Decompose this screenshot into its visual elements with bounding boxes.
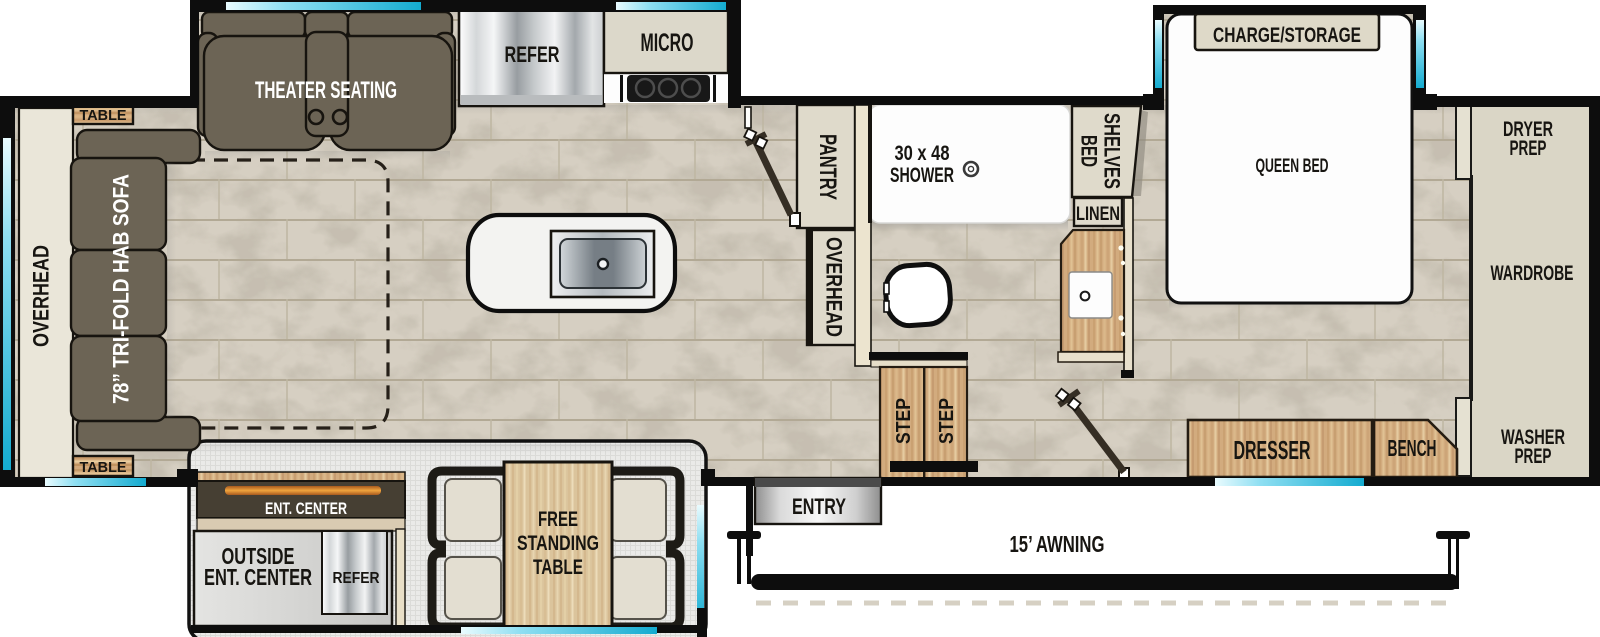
svg-text:ENT. CENTER: ENT. CENTER xyxy=(265,499,347,518)
svg-text:SHELVES: SHELVES xyxy=(1100,113,1125,189)
svg-text:REFER: REFER xyxy=(333,570,380,587)
svg-text:ENTRY: ENTRY xyxy=(792,494,846,519)
svg-text:STEP: STEP xyxy=(893,398,915,444)
svg-text:STANDING: STANDING xyxy=(517,532,599,555)
svg-text:LINEN: LINEN xyxy=(1076,204,1120,225)
svg-text:BED: BED xyxy=(1077,135,1102,167)
svg-text:ENT. CENTER: ENT. CENTER xyxy=(204,564,312,590)
svg-text:STEP: STEP xyxy=(936,398,958,444)
svg-text:BENCH: BENCH xyxy=(1388,435,1437,461)
svg-text:PREP: PREP xyxy=(1510,137,1547,160)
svg-text:OVERHEAD: OVERHEAD xyxy=(822,237,847,337)
svg-text:SHOWER: SHOWER xyxy=(890,164,954,187)
svg-text:OVERHEAD: OVERHEAD xyxy=(29,245,54,347)
svg-text:DRESSER: DRESSER xyxy=(1234,435,1311,465)
svg-text:THEATER SEATING: THEATER SEATING xyxy=(255,77,397,104)
svg-text:MICRO: MICRO xyxy=(641,29,694,57)
svg-text:TABLE: TABLE xyxy=(80,459,127,476)
svg-text:PANTRY: PANTRY xyxy=(814,134,841,200)
svg-text:WARDROBE: WARDROBE xyxy=(1491,262,1574,285)
svg-text:CHARGE/STORAGE: CHARGE/STORAGE xyxy=(1213,24,1361,47)
svg-text:REFER: REFER xyxy=(505,42,560,67)
svg-text:15’ AWNING: 15’ AWNING xyxy=(1010,531,1105,557)
svg-text:30 x 48: 30 x 48 xyxy=(895,142,950,165)
svg-text:TABLE: TABLE xyxy=(533,556,583,579)
svg-text:QUEEN BED: QUEEN BED xyxy=(1256,156,1329,177)
svg-text:PREP: PREP xyxy=(1515,445,1552,468)
svg-text:FREE: FREE xyxy=(538,508,578,531)
svg-text:TABLE: TABLE xyxy=(80,107,127,124)
svg-text:78” TRI-FOLD HAB SOFA: 78” TRI-FOLD HAB SOFA xyxy=(109,174,134,404)
